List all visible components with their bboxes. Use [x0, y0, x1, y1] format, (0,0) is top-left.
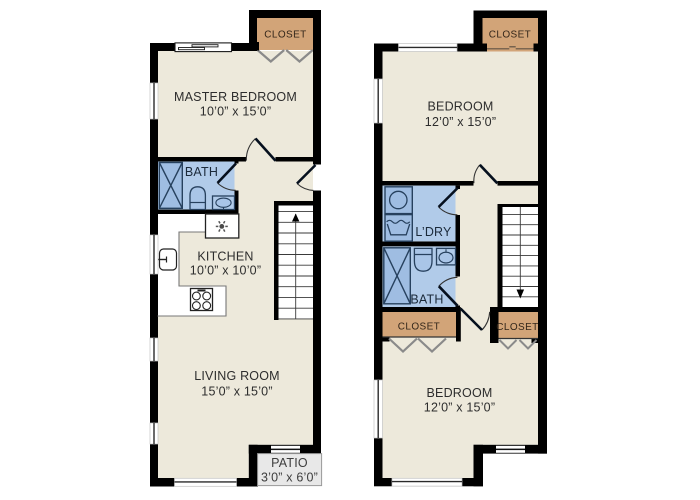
- svg-text:CLOSET: CLOSET: [264, 30, 306, 41]
- svg-text:BEDROOM: BEDROOM: [428, 100, 494, 114]
- svg-text:CLOSET: CLOSET: [496, 322, 538, 333]
- svg-text:15’0” x 15’0”: 15’0” x 15’0”: [201, 385, 272, 399]
- svg-text:10’0” x 10’0”: 10’0” x 10’0”: [190, 264, 261, 278]
- svg-text:12’0” x 15’0”: 12’0” x 15’0”: [425, 115, 496, 129]
- svg-text:CLOSET: CLOSET: [489, 30, 531, 41]
- svg-text:LIVING ROOM: LIVING ROOM: [194, 369, 280, 383]
- svg-text:10’0” x 15’0”: 10’0” x 15’0”: [200, 105, 271, 119]
- svg-text:3’0” x 6’0”: 3’0” x 6’0”: [261, 471, 318, 485]
- svg-text:PATIO: PATIO: [271, 456, 308, 470]
- svg-text:12’0” x 15’0”: 12’0” x 15’0”: [424, 401, 495, 415]
- svg-text:MASTER BEDROOM: MASTER BEDROOM: [174, 90, 297, 104]
- svg-text:BATH: BATH: [185, 165, 218, 179]
- svg-text:BEDROOM: BEDROOM: [427, 386, 493, 400]
- svg-text:L’DRY: L’DRY: [415, 225, 452, 239]
- svg-text:CLOSET: CLOSET: [398, 322, 440, 333]
- svg-text:BATH: BATH: [410, 293, 443, 307]
- svg-text:KITCHEN: KITCHEN: [197, 250, 253, 264]
